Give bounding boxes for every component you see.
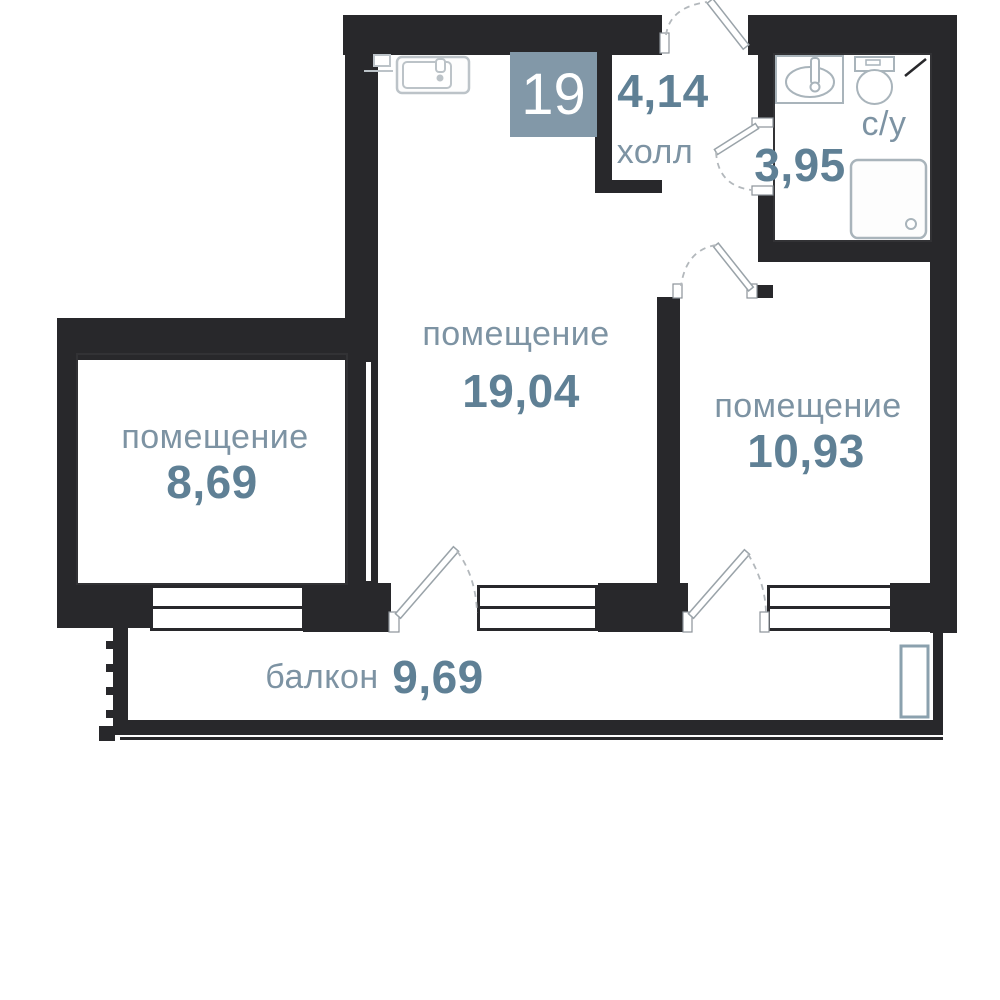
window-divider (769, 606, 891, 609)
wall-top-right (748, 15, 957, 55)
room-right-area-label: 10,93 (747, 428, 865, 474)
unit-number-badge: 19 (510, 52, 597, 137)
wall-balcony-foot (99, 726, 115, 741)
wall-bottom-c (598, 583, 688, 632)
window-room-right (767, 585, 893, 631)
wall-kitchen-hall-stub (595, 180, 662, 193)
balcony-rail-tick (106, 641, 113, 649)
wall-balcony-right (933, 630, 943, 732)
wall-hall-room-stub (748, 285, 773, 298)
room-right-name-label: помещение (714, 389, 901, 423)
hall-name-label: холл (617, 135, 693, 169)
room-main-name-label: помещение (422, 317, 609, 351)
wall-room-divider-right (657, 297, 680, 590)
wall-bottom-d (890, 583, 957, 632)
balcony-door-left-icon (389, 547, 477, 632)
bathroom-name-label: с/у (862, 107, 907, 141)
wall-outer-left (57, 318, 78, 628)
wall-top-left (343, 15, 662, 55)
floor-plan: 19 4,14 холл с/у 3,95 помещение 19,04 по… (0, 0, 1000, 1000)
wall-balcony-baseline (120, 737, 943, 740)
kitchen-sink-icon (364, 55, 469, 93)
window-room-left (150, 585, 305, 631)
balcony-name-label: балкон (265, 660, 378, 694)
wall-bath-bottom (758, 240, 930, 262)
wall-bottom-b (303, 583, 391, 632)
unit-number: 19 (521, 61, 586, 128)
window-room-main (477, 585, 598, 631)
wall-balcony-bottom (113, 720, 943, 735)
window-divider (152, 606, 303, 609)
room-right-door-icon (673, 243, 757, 298)
balcony-rail-tick (106, 687, 113, 695)
window-divider (479, 606, 596, 609)
wall-balcony-left (113, 628, 128, 735)
balcony-unit-icon (901, 646, 928, 717)
room-left-name-label: помещение (121, 420, 308, 454)
wall-seam-line (366, 362, 371, 581)
bathroom-area-label: 3,95 (754, 142, 846, 188)
balcony-door-right-icon (683, 550, 769, 632)
wall-bottom-a (57, 583, 150, 628)
balcony-area-label: 9,69 (392, 654, 484, 700)
hall-area-label: 4,14 (617, 68, 709, 114)
room-left-area-label: 8,69 (166, 459, 258, 505)
balcony-rail-tick (106, 664, 113, 672)
wall-left-vertical (345, 50, 378, 632)
wall-outer-right (930, 15, 957, 633)
wall-kitchen-hall-vertical (595, 52, 612, 193)
balcony-rail-tick (106, 710, 113, 718)
room-main-area-label: 19,04 (462, 368, 580, 414)
entrance-door-icon (660, 0, 749, 53)
